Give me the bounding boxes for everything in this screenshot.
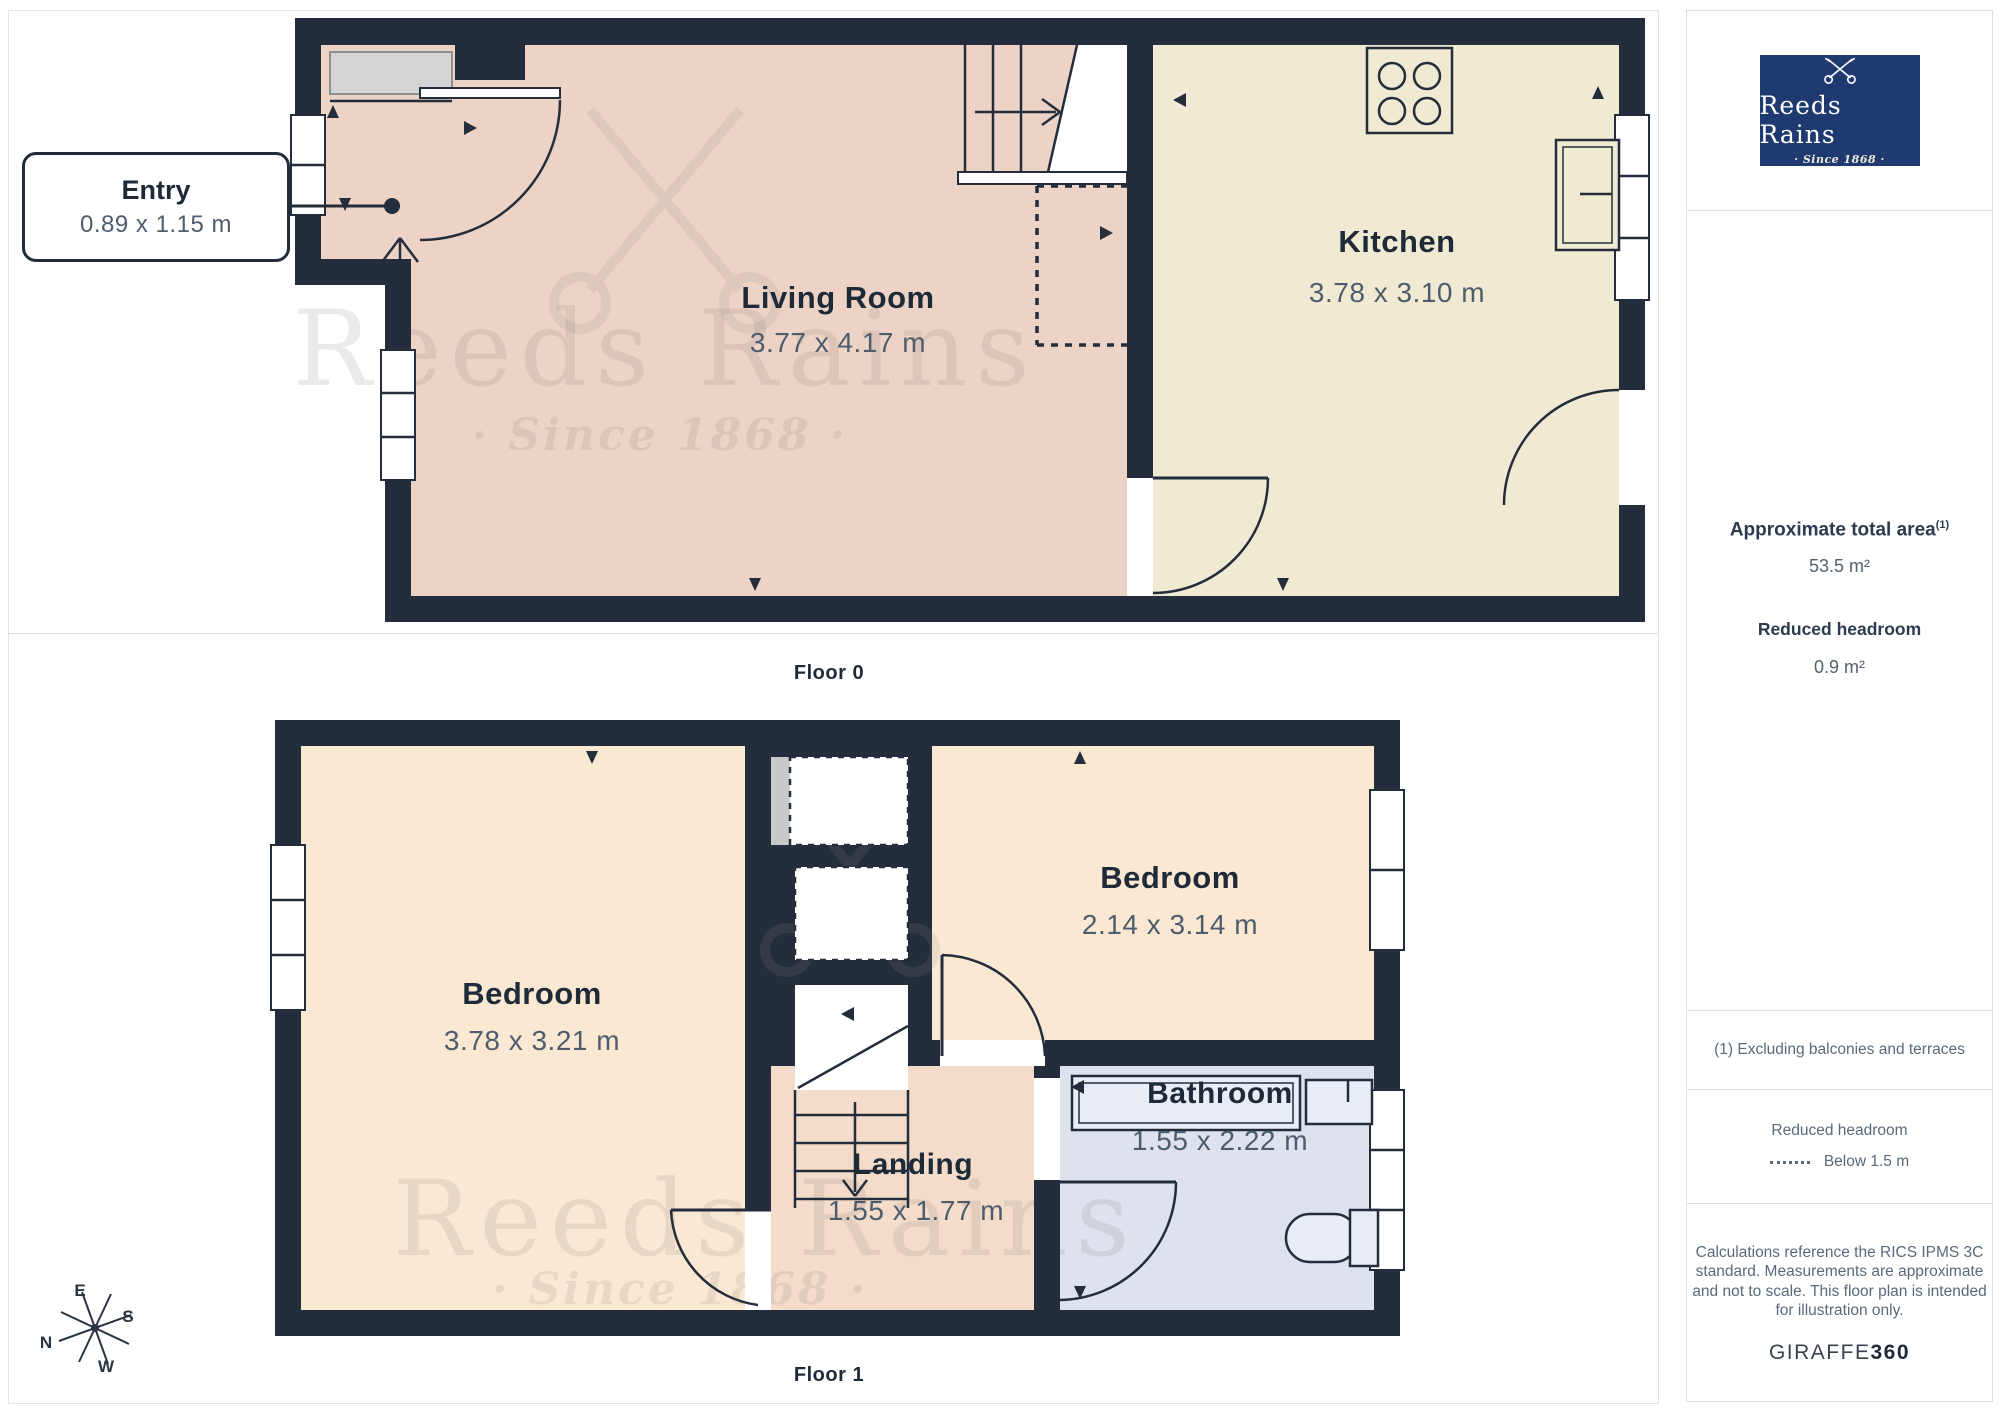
svg-text:· Since 1868 ·: · Since 1868 · <box>472 410 848 461</box>
area-title: Approximate total area(1) <box>1730 519 1949 541</box>
bedroom-right-dims: 2.14 x 3.14 m <box>1082 909 1258 940</box>
living-room-label: Living Room <box>741 280 934 315</box>
sink <box>1306 1080 1372 1124</box>
compass-icon: E S N W <box>40 1281 134 1376</box>
legend-title: Reduced headroom <box>1771 1122 1907 1140</box>
floor1-caption: Floor 1 <box>0 1364 1658 1387</box>
window <box>381 350 415 480</box>
entry-point-dot <box>384 198 400 214</box>
svg-text:S: S <box>122 1307 133 1326</box>
window <box>271 845 305 1010</box>
landing-dims: 1.55 x 1.77 m <box>828 1195 1004 1226</box>
living-room-dims: 3.77 x 4.17 m <box>750 327 926 358</box>
bathroom-dims: 1.55 x 2.22 m <box>1132 1125 1308 1156</box>
area-section: Approximate total area(1) 53.5 m² Reduce… <box>1687 210 1992 1010</box>
kitchen-label: Kitchen <box>1338 224 1455 259</box>
footnote-ref: (1) <box>1936 519 1949 531</box>
landing-label: Landing <box>853 1148 973 1181</box>
logo-section: Reeds Rains · Since 1868 · <box>1687 11 1992 210</box>
legend-item: Below 1.5 m <box>1824 1153 1909 1171</box>
footnote-text: (1) Excluding balconies and terraces <box>1714 1041 1965 1059</box>
headroom-value: 0.9 m² <box>1814 657 1865 678</box>
footnote-section: (1) Excluding balconies and terraces <box>1687 1010 1992 1089</box>
floor1-plan: Reeds Rains · Since 1868 · <box>0 636 1654 1414</box>
hob <box>1367 48 1452 133</box>
giraffe360-credit: GIRAFFE360 <box>1769 1341 1910 1365</box>
floor0-plan: Reeds Rains · Since 1868 · <box>0 0 1654 636</box>
svg-text:E: E <box>74 1281 85 1300</box>
brand-tagline: · Since 1868 · <box>1794 153 1885 166</box>
dotted-line-swatch <box>1770 1161 1810 1164</box>
legend-section: Reduced headroom Below 1.5 m <box>1687 1089 1992 1203</box>
headroom-title: Reduced headroom <box>1758 619 1921 640</box>
kitchen-dims: 3.78 x 3.10 m <box>1309 277 1485 308</box>
bathroom-label: Bathroom <box>1147 1077 1293 1110</box>
bedroom-left-dims: 3.78 x 3.21 m <box>444 1025 620 1056</box>
entry-callout: Entry 0.89 x 1.15 m <box>22 152 290 262</box>
floorplan-page: Reeds Rains · Since 1868 · <box>0 0 2000 1414</box>
reeds-rains-logo: Reeds Rains · Since 1868 · <box>1760 55 1920 166</box>
area-value: 53.5 m² <box>1809 556 1870 577</box>
disclaimer-text: Calculations reference the RICS IPMS 3C … <box>1684 1243 1996 1321</box>
kitchen-counter <box>1556 140 1619 250</box>
bedroom-left-label: Bedroom <box>462 976 602 1011</box>
entry-dims: 0.89 x 1.15 m <box>80 211 232 239</box>
svg-text:N: N <box>40 1333 52 1352</box>
toilet <box>1286 1210 1378 1266</box>
headroom-box-2 <box>795 867 908 960</box>
legend-row: Below 1.5 m <box>1770 1153 1909 1171</box>
disclaimer-section: Calculations reference the RICS IPMS 3C … <box>1687 1203 1992 1403</box>
headroom-box-1 <box>790 757 908 845</box>
entry-label: Entry <box>121 175 190 206</box>
headroom-strip <box>771 757 790 845</box>
info-sidebar: Reeds Rains · Since 1868 · Approximate t… <box>1686 10 1993 1402</box>
brand-name: Reeds Rains <box>1760 91 1920 149</box>
svg-text:· Since 1868 ·: · Since 1868 · <box>492 1264 868 1315</box>
bedroom-right-label: Bedroom <box>1100 860 1240 895</box>
crossed-keys-icon <box>1814 55 1866 86</box>
